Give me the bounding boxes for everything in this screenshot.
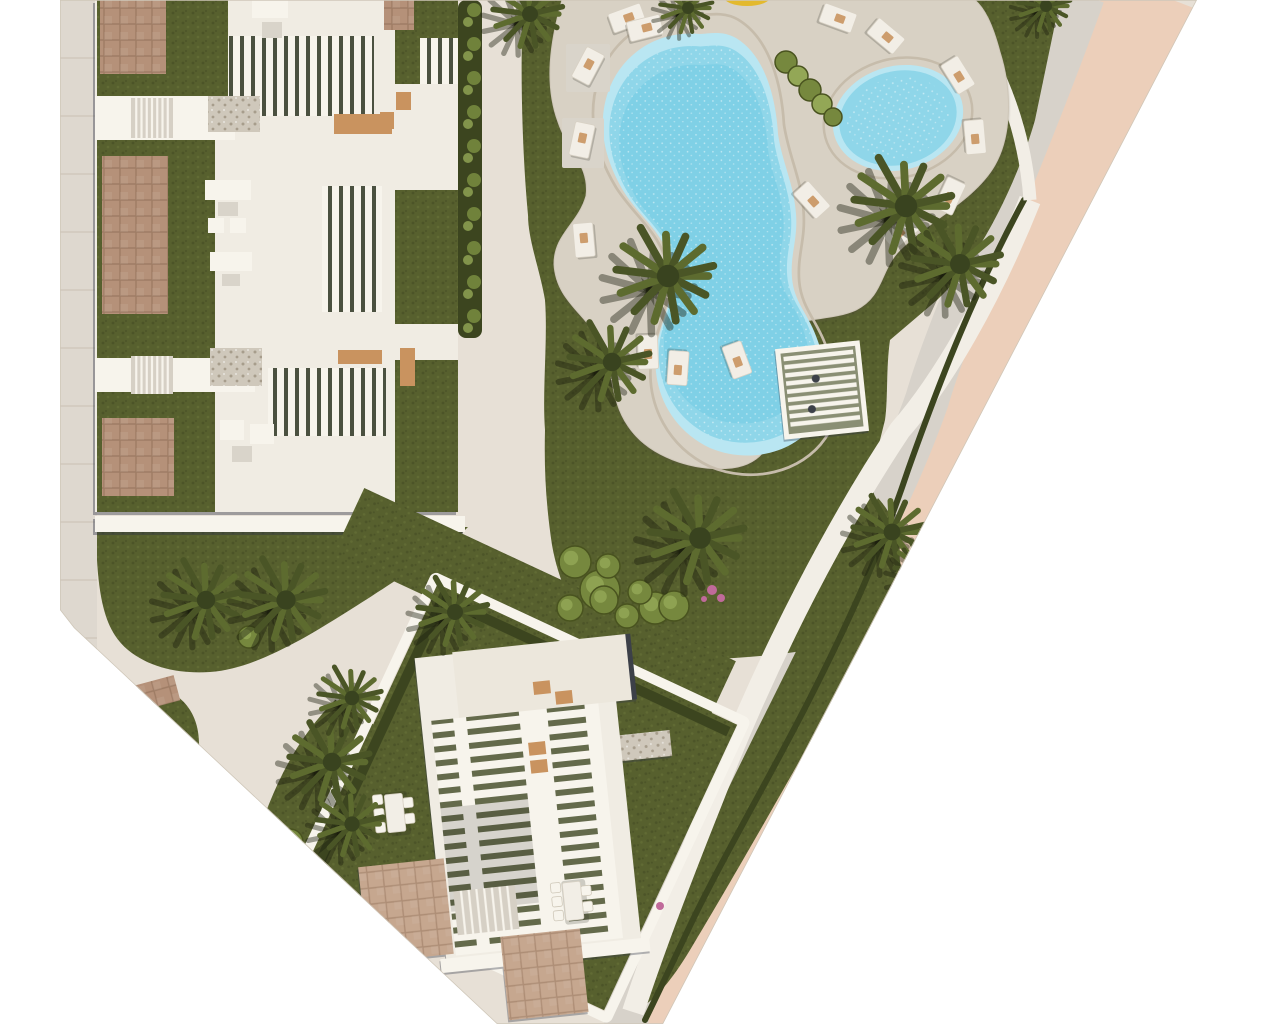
garden-bush-highlight [619, 608, 630, 619]
block-a-feature [102, 418, 174, 496]
flowering-bush [717, 594, 725, 602]
garden-bush-highlight [594, 590, 607, 603]
apartment-block-north-west [95, 0, 465, 532]
pool-divider-bush [824, 108, 842, 126]
island-teardrop-small [116, 686, 199, 838]
sun-lounger [665, 348, 689, 385]
block-a-feature [210, 252, 252, 271]
sun-lounger [573, 222, 598, 260]
development-plan [60, 0, 1197, 1024]
block-a-feature [220, 420, 244, 440]
garden-bush [277, 829, 303, 855]
block-a-feature [268, 368, 386, 436]
block-a-feature [100, 0, 166, 74]
flowering-bush [656, 902, 664, 910]
garden-bush-highlight [561, 599, 573, 611]
garden-bush-highlight [564, 551, 578, 565]
staircase [453, 885, 519, 935]
block-a-feature [210, 348, 262, 386]
block-b-feature [530, 759, 548, 774]
block-a-feature [396, 92, 411, 110]
site-plan-rendering [0, 0, 1280, 1024]
outdoor-dining-set [372, 790, 416, 838]
block-a-feature [232, 446, 252, 462]
palm-crown [125, 724, 194, 791]
staircase [131, 98, 173, 138]
palm-shadow [110, 731, 184, 803]
block-a-feature [222, 274, 240, 286]
garden-bush-highlight [600, 558, 611, 569]
block-b-feature [500, 928, 588, 1020]
block-a-feature [252, 0, 288, 18]
block-b-feature [555, 690, 573, 705]
flowering-bush [701, 596, 707, 602]
garden-bush-highlight [281, 833, 293, 845]
block-a-feature [400, 348, 415, 386]
block-a-feature [380, 112, 394, 129]
lawn-wedge-south [326, 922, 378, 1016]
garden-bush-highlight [632, 584, 643, 595]
pergola-deck [778, 343, 867, 437]
block-b-feature [528, 741, 546, 756]
block-a-feature [384, 0, 414, 30]
block-a-feature [262, 22, 282, 38]
left-sidewalk [60, 0, 97, 660]
block-a-feature [208, 96, 260, 132]
block-a-feature [338, 350, 382, 364]
block-a-feature [205, 180, 251, 200]
block-b-feature [358, 858, 454, 962]
staircase [131, 356, 173, 394]
outdoor-dining-set [550, 878, 594, 926]
masterplan-canvas [0, 0, 1280, 1024]
block-a-feature [102, 156, 168, 314]
block-a-feature [218, 202, 238, 216]
flowering-bush [707, 585, 717, 595]
block-b-feature [533, 680, 551, 695]
garden-bush-highlight [664, 596, 678, 610]
block-a-feature [230, 218, 246, 233]
hedge-strip [458, 0, 482, 338]
palm-tree [110, 724, 194, 803]
block-a-feature [208, 218, 224, 233]
block-a-feature [322, 186, 382, 312]
sun-lounger [961, 117, 986, 155]
block-a-feature [250, 424, 274, 444]
